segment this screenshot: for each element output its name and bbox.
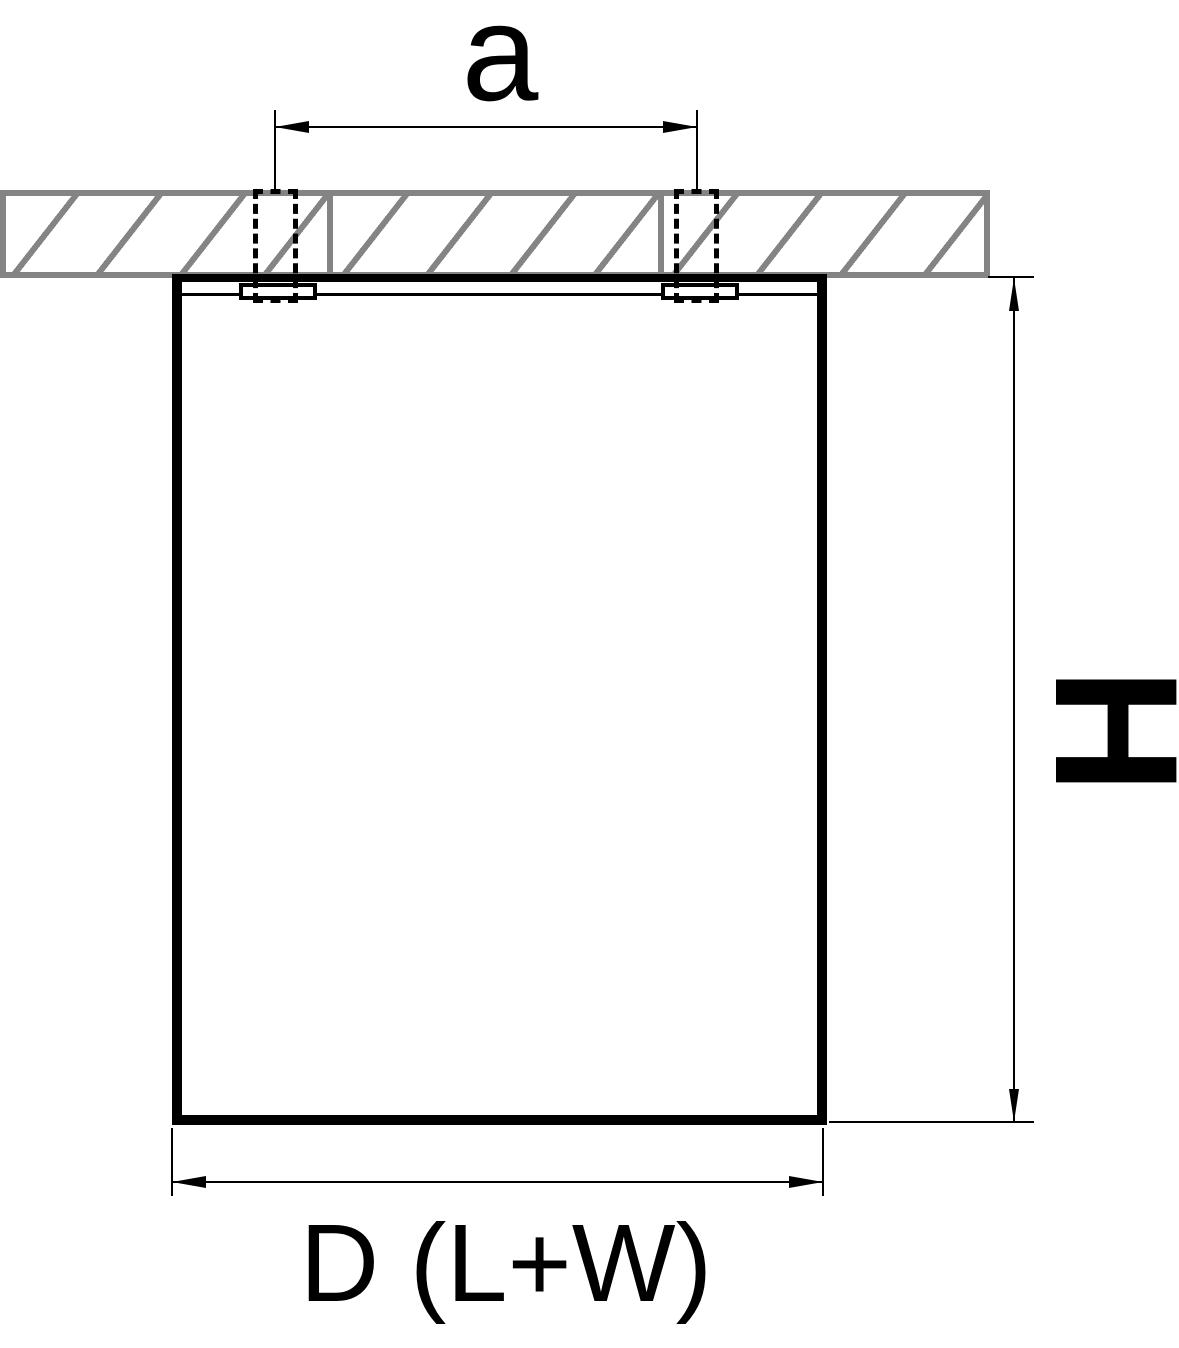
dim-h-arrowhead-bottom-icon (1009, 1089, 1019, 1122)
dim-d-line (172, 1181, 823, 1183)
mounting-dimension-diagram: a H D (L+W) (0, 0, 1179, 1348)
ceiling-outline (0, 190, 990, 278)
dim-h-line (1013, 278, 1015, 1122)
dim-d-arrowhead-left-icon (172, 1176, 206, 1188)
dim-d-arrowhead-right-icon (789, 1176, 823, 1188)
dim-h-extension-bottom (829, 1121, 1034, 1123)
dim-d-label: D (L+W) (236, 1209, 776, 1319)
fixture-body (172, 274, 827, 1125)
dim-h-arrowhead-top-icon (1009, 278, 1019, 311)
mounting-hole-dashed-left (253, 189, 298, 303)
dim-h-label: H (1030, 645, 1179, 817)
dim-a-arrowhead-left-icon (275, 121, 309, 133)
dim-a-label: a (430, 0, 570, 122)
mounting-hole-dashed-right (674, 189, 719, 303)
dim-a-arrowhead-right-icon (663, 121, 697, 133)
